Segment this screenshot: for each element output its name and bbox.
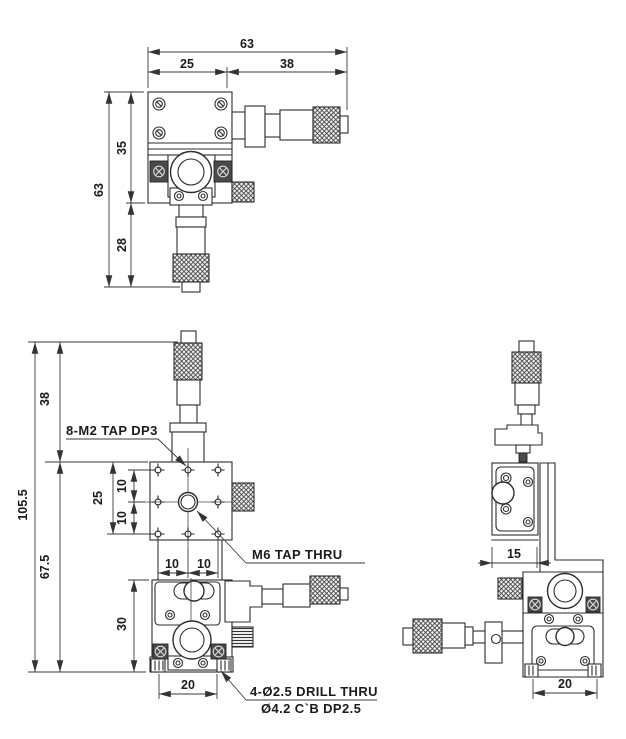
knurled-knob xyxy=(173,254,209,282)
knurled-knob xyxy=(413,619,442,653)
note-counterbore: Ø4.2 C`B DP2.5 xyxy=(261,701,361,716)
dim-front-base-width: 20 xyxy=(181,678,195,692)
optic-bore xyxy=(548,574,583,609)
screw-icon xyxy=(175,192,184,201)
screw-icon xyxy=(199,192,208,201)
screw-icon xyxy=(545,615,554,624)
dim-top-total-width: 63 xyxy=(240,37,254,51)
screw-icon xyxy=(201,611,210,620)
dim-side-upper-body-width: 15 xyxy=(507,547,521,561)
knurled-knob xyxy=(512,352,541,383)
pivot-bore xyxy=(492,482,514,504)
screw-icon xyxy=(153,127,165,139)
knurled-knob xyxy=(498,578,522,599)
dim-top-width-left: 25 xyxy=(180,57,194,71)
clamp-oval xyxy=(184,581,204,601)
knurled-knob xyxy=(232,182,254,202)
technical-drawing-page: 63 25 38 63 35 28 xyxy=(0,0,626,739)
dim-front-hole-span: 25 xyxy=(91,491,105,505)
note-tap-m2: 8-M2 TAP DP3 xyxy=(66,423,158,438)
dim-front-hole-pitch-h-right: 10 xyxy=(197,557,211,571)
dim-front-hole-pitch-h-left: 10 xyxy=(165,557,179,571)
note-drill-thru: 4-Ø2.5 DRILL THRU xyxy=(250,684,378,699)
screw-icon xyxy=(524,518,533,527)
front-view-lower-stage xyxy=(150,578,233,672)
screw-icon xyxy=(199,659,208,668)
dim-front-lower-stage-height: 30 xyxy=(115,617,129,631)
screw-icon xyxy=(215,127,227,139)
knurled-knob xyxy=(310,576,340,604)
dim-front-hole-pitch-v-upper: 10 xyxy=(115,479,129,493)
dim-front-mic-clearance: 38 xyxy=(38,392,52,406)
dim-front-hole-pitch-v-lower: 10 xyxy=(115,511,129,525)
dim-top-total-depth: 63 xyxy=(92,183,106,197)
knurled-knob xyxy=(232,483,254,511)
screw-icon xyxy=(524,478,533,487)
dim-top-depth-lower: 28 xyxy=(115,238,129,252)
clamp-oval xyxy=(556,628,574,646)
knurled-knob xyxy=(313,107,340,143)
screw-icon xyxy=(174,659,183,668)
knurled-knob xyxy=(174,343,202,380)
spindle-tip xyxy=(519,453,527,462)
optic-bore xyxy=(173,621,211,659)
xy-stage-drawing: 63 25 38 63 35 28 xyxy=(0,0,626,739)
optic-bore xyxy=(171,152,212,193)
striped-knob xyxy=(232,627,253,647)
dim-side-base-width: 20 xyxy=(558,677,572,691)
screw-icon xyxy=(153,98,165,110)
dim-top-depth-upper: 35 xyxy=(115,141,129,155)
dim-front-body-height: 67.5 xyxy=(38,555,52,579)
dim-top-width-right: 38 xyxy=(280,57,294,71)
screw-icon xyxy=(574,615,583,624)
dim-front-total-height: 105.5 xyxy=(16,489,30,520)
note-tap-m6: M6 TAP THRU xyxy=(252,547,343,562)
top-view-side-knob xyxy=(232,182,254,202)
screw-icon xyxy=(166,611,175,620)
screw-icon xyxy=(215,98,227,110)
